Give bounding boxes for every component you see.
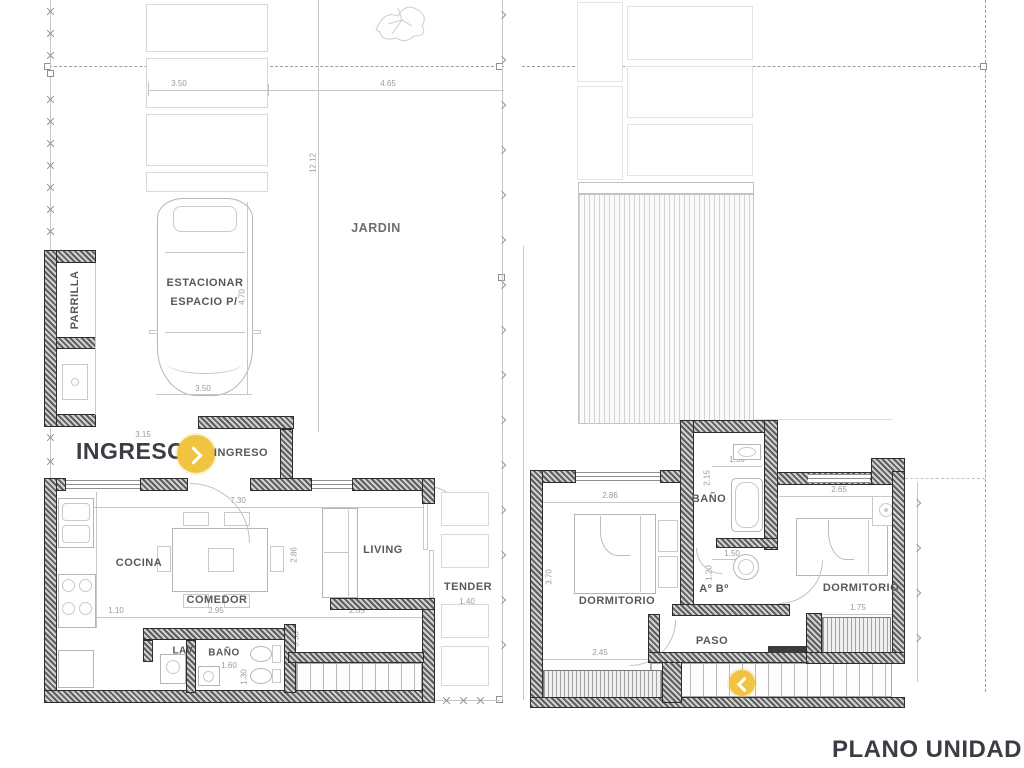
- dim-bano-depth: 1.30: [240, 669, 249, 685]
- x-mark: [47, 30, 54, 37]
- tree-icon: [368, 0, 432, 44]
- page-title: PLANO UNIDAD: [832, 736, 1022, 764]
- living-label: LIVING: [363, 544, 403, 556]
- tick-mark: [913, 499, 921, 507]
- entry-door-arc: [190, 483, 250, 543]
- dim-line: [712, 466, 762, 467]
- driveway-paver: [146, 172, 268, 192]
- sofa-line: [348, 510, 349, 596]
- uf-stair-bar: [648, 652, 808, 663]
- tick-mark: [913, 589, 921, 597]
- dim-lot-depth: 12.12: [309, 153, 318, 173]
- tender-label: TENDER: [444, 581, 492, 593]
- gf-wall-left: [44, 478, 57, 703]
- dim-line: [543, 502, 680, 503]
- x-mark: [47, 8, 54, 15]
- gf-wall-right: [422, 478, 435, 504]
- ingreso-door-label: INGRESO: [214, 447, 268, 459]
- paso-label: PASO: [696, 635, 728, 647]
- x-mark: [460, 697, 467, 704]
- fence-left-line: [50, 0, 51, 252]
- stairs-upper: [650, 663, 892, 697]
- dim-entry-width: 3.15: [135, 430, 151, 439]
- bed-line: [868, 520, 869, 574]
- uf-wall-left: [530, 470, 543, 708]
- gf-wall: [250, 478, 312, 491]
- tick-mark: [498, 11, 506, 19]
- bidet-base: [272, 669, 281, 683]
- bano-door-arc: [696, 548, 722, 574]
- dining-chair: [270, 546, 284, 572]
- side-table-lamp-dot: [884, 508, 888, 512]
- gf-window: [312, 480, 352, 489]
- parrilla-wall: [44, 250, 57, 427]
- dormitorio-left-label: DORMITORIO: [579, 595, 655, 607]
- tick-mark: [498, 596, 506, 604]
- parking-label-line2: ESPACIO P/: [170, 296, 237, 308]
- x-mark: [47, 140, 54, 147]
- gf-wall-bottom: [44, 690, 435, 703]
- boundary-marker: [47, 70, 54, 77]
- sofa-line: [324, 552, 348, 553]
- washer-drum: [166, 660, 180, 674]
- uf-wall-bottom: [530, 697, 905, 708]
- parking-label-line1: ESTACIONAR: [167, 277, 244, 289]
- dim-comedor-width: 2.95: [208, 606, 224, 615]
- roof-edge-band: [578, 182, 754, 194]
- tick-mark: [498, 506, 506, 514]
- uf-window: [808, 474, 870, 483]
- dim-dorml-width: 2.86: [602, 491, 618, 500]
- burner: [79, 579, 92, 592]
- x-mark: [47, 184, 54, 191]
- balcony-left: [543, 670, 662, 698]
- ingreso-headline: INGRESO: [76, 438, 186, 465]
- garden-divider-line: [318, 0, 319, 432]
- burner: [62, 579, 75, 592]
- roof-paver: [627, 6, 753, 60]
- bed-line: [640, 516, 641, 592]
- tick-mark: [498, 326, 506, 334]
- dim-dorml-depth: 3.70: [545, 569, 554, 585]
- nightstand: [658, 520, 678, 552]
- gf-wall-stair: [288, 652, 424, 663]
- comedor-label: COMEDOR: [187, 594, 248, 606]
- tick-mark: [498, 641, 506, 649]
- x-mark: [477, 697, 484, 704]
- kitchen-sink-bowl: [62, 503, 90, 521]
- uf-landing: [768, 646, 808, 653]
- dim-line: [57, 507, 423, 508]
- property-connector: [905, 478, 985, 479]
- gf-wall-lav: [143, 640, 153, 662]
- bidet: [250, 668, 272, 684]
- roof-paver: [577, 86, 623, 180]
- dim-dormr-width: 2.65: [831, 485, 847, 494]
- burner: [79, 602, 92, 615]
- uf-balcr-jamb: [806, 613, 822, 654]
- sofa: [322, 508, 358, 598]
- gf-wall: [140, 478, 188, 491]
- roof-paver: [577, 2, 623, 82]
- x-mark: [47, 118, 54, 125]
- driveway-paver: [146, 58, 268, 108]
- uf-ante-bottom: [672, 604, 790, 616]
- dim-line: [247, 202, 248, 394]
- uf-wall-right: [892, 471, 905, 663]
- tender-paver: [441, 604, 489, 638]
- tick-mark: [498, 236, 506, 244]
- chevron-right-icon: [184, 446, 202, 464]
- antebano-label: Aº Bº: [699, 583, 728, 595]
- x-mark: [443, 697, 450, 704]
- lav-label: LAV.: [172, 646, 195, 657]
- bano-upper-label: BAÑO: [692, 493, 726, 505]
- dim-line: [148, 90, 504, 91]
- boundary-marker: [980, 63, 987, 70]
- parrilla-sink-drain: [71, 378, 79, 386]
- chevron-left-icon: [737, 677, 753, 693]
- x-mark: [47, 52, 54, 59]
- kitchen-sink-bowl: [62, 525, 90, 543]
- parrilla-label: PARRILLA: [69, 271, 81, 330]
- dim-dorml-lower: 2.45: [592, 648, 608, 657]
- uf-window: [576, 472, 660, 481]
- cocina-label: COCINA: [116, 557, 162, 569]
- dormr-door-arc: [779, 560, 823, 604]
- dim-balcr-width: 1.75: [850, 603, 866, 612]
- uf-balcr-bottom: [806, 652, 905, 664]
- entry-canopy-wall: [198, 416, 294, 429]
- x-mark: [47, 162, 54, 169]
- entry-canopy-post: [280, 429, 293, 481]
- toilet: [250, 646, 272, 662]
- dormitorio-right-label: DORMITORIO: [823, 582, 899, 594]
- tick-mark: [498, 416, 506, 424]
- gf-wall-living: [330, 598, 435, 610]
- dim-living-depth: 2.86: [290, 547, 299, 563]
- tick-mark: [913, 634, 921, 642]
- floor-plan-canvas: ESTACIONAR ESPACIO P/ JARDIN 3.50 4.65 1…: [0, 0, 1024, 768]
- driveway-paver: [146, 4, 268, 52]
- dim-banou-depth: 2.15: [703, 470, 712, 486]
- dim-line: [268, 84, 269, 96]
- tick-mark: [498, 146, 506, 154]
- roof-paver: [627, 66, 753, 118]
- roof-deck: [578, 194, 754, 424]
- tick-mark: [498, 551, 506, 559]
- dim-line: [822, 614, 892, 615]
- dim-car-length: 4.70: [238, 289, 247, 305]
- x-mark: [47, 458, 54, 465]
- dim-drive-width: 3.50: [171, 79, 187, 88]
- uf-bano-partition: [716, 538, 778, 548]
- kitchen-counter-line: [96, 492, 97, 628]
- parrilla-edge: [95, 263, 96, 415]
- tick-mark: [498, 191, 506, 199]
- kitchen-cabinet: [58, 650, 94, 688]
- uf-bano-left: [680, 420, 694, 615]
- uf-bano-right: [764, 420, 778, 550]
- tender-paver: [441, 492, 489, 526]
- jardin-label: JARDIN: [351, 221, 401, 235]
- bathtub-inner: [735, 482, 759, 528]
- dim-bano-width: 1.60: [221, 661, 237, 670]
- dim-tender-width: 1.40: [459, 597, 475, 606]
- x-mark: [47, 206, 54, 213]
- bath-sink-bowl: [203, 671, 214, 682]
- gf-wall-right: [422, 598, 435, 703]
- property-line-top-left: [44, 66, 504, 67]
- dining-table-center: [208, 548, 234, 572]
- toilet-tank: [272, 645, 281, 663]
- driveway-paver: [146, 114, 268, 166]
- fence-right-plan-left-line: [523, 246, 524, 700]
- vanity-bowl: [738, 447, 756, 457]
- x-mark: [47, 434, 54, 441]
- burner: [62, 602, 75, 615]
- nightstand: [658, 556, 678, 588]
- property-line-right: [985, 0, 986, 692]
- dim-line: [148, 82, 149, 96]
- balcony-right: [822, 617, 891, 653]
- ingreso-marker-button[interactable]: [177, 435, 215, 473]
- tick-mark: [498, 371, 506, 379]
- tender-paver: [441, 534, 489, 568]
- x-mark: [47, 96, 54, 103]
- gf-wall-lav: [143, 628, 293, 640]
- sliding-door-panel: [429, 550, 434, 598]
- bano-gf-label: BAÑO: [208, 648, 239, 659]
- stairs-ground: [296, 663, 422, 691]
- dim-garden-width: 4.65: [380, 79, 396, 88]
- basin-round-inner: [738, 559, 754, 575]
- x-mark: [47, 228, 54, 235]
- gf-window: [66, 480, 140, 489]
- dim-car-width: 3.50: [195, 384, 211, 393]
- dim-kitchen-aisle: 1.10: [108, 606, 124, 615]
- tick-mark: [498, 281, 506, 289]
- roof-paver: [627, 124, 753, 176]
- dim-line: [156, 394, 252, 395]
- tick-mark: [498, 101, 506, 109]
- dim-line: [57, 617, 423, 618]
- tick-mark: [913, 544, 921, 552]
- stairs-marker-button[interactable]: [729, 670, 755, 696]
- fence-right-plan-right-line: [917, 482, 918, 682]
- tender-paver: [441, 646, 489, 686]
- tick-mark: [498, 461, 506, 469]
